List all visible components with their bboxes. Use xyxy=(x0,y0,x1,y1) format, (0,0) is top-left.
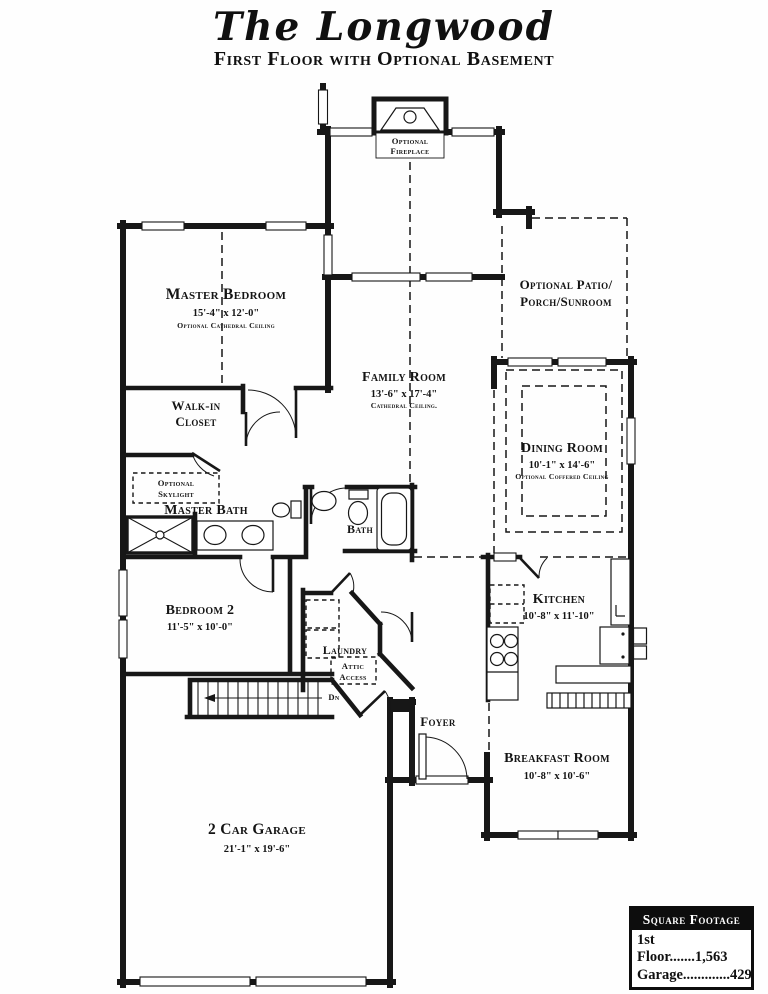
front-door-leaf xyxy=(419,734,426,779)
vanity-sink-right xyxy=(242,526,264,545)
kitchen-counter-right xyxy=(611,559,630,625)
patio-label-line2: Porch/Sunroom xyxy=(520,294,612,309)
dining-room-label: Dining Room xyxy=(521,441,603,456)
foyer-label: Foyer xyxy=(420,714,456,729)
sqft-row-garage: Garage.............429 xyxy=(632,966,751,984)
bath-label: Bath xyxy=(347,522,373,536)
vanity-sink-left xyxy=(204,526,226,545)
garage-door-right xyxy=(256,977,366,986)
sqft-row-first-floor: 1st Floor.......1,563 xyxy=(632,931,751,966)
optional-fireplace: Optional Fireplace xyxy=(374,99,446,158)
refrigerator xyxy=(600,627,629,664)
bath-toilet-tank xyxy=(349,490,368,499)
master-bedroom-dims: 15'-4" x 12'-0" xyxy=(193,308,260,319)
kitchen-dims: 10'-8" x 11'-10" xyxy=(523,611,594,622)
attic-access-label-line1: Attic xyxy=(342,661,364,671)
family-room-note: Cathedral Ceiling. xyxy=(371,401,438,410)
garage-dims: 21'-1" x 19'-6" xyxy=(224,844,291,855)
square-footage-header: Square Footage xyxy=(632,909,751,930)
master-bedroom-label: Master Bedroom xyxy=(166,286,287,303)
walk-in-closet-label-line2: Closet xyxy=(175,414,216,429)
walk-in-closet-label-line1: Walk-in xyxy=(172,398,221,413)
kitchen-label: Kitchen xyxy=(533,592,586,607)
square-footage-body: 1st Floor.......1,563 Garage............… xyxy=(632,930,751,987)
master-toilet-bowl xyxy=(273,503,290,517)
fireplace-label-line2: Fireplace xyxy=(391,146,430,156)
kitchen-counter-bottom xyxy=(556,666,631,683)
stair-direction-arrow xyxy=(204,694,215,702)
breakfast-room-dims: 10'-8" x 10'-6" xyxy=(524,771,591,782)
dining-room-dims: 10'-1" x 14'-6" xyxy=(529,460,596,471)
shower-drain xyxy=(156,531,164,539)
washer-outline xyxy=(306,600,339,628)
master-toilet-tank xyxy=(291,501,301,518)
square-footage-box: Square Footage 1st Floor.......1,563 Gar… xyxy=(629,906,754,990)
floor-plan-page: The Longwood First Floor with Optional B… xyxy=(0,0,768,994)
breakfast-room-label: Breakfast Room xyxy=(504,751,610,766)
exterior-utility-box-1 xyxy=(634,628,647,644)
stairs-dn-label: Dn xyxy=(328,692,340,702)
fireplace-label-line1: Optional xyxy=(392,136,428,146)
garage-door-left xyxy=(140,977,250,986)
skylight-label-line2: Skylight xyxy=(158,489,194,499)
family-room-label: Family Room xyxy=(362,370,446,385)
family-room-dims: 13'-6" x 17'-4" xyxy=(371,389,438,400)
attic-access-label-line2: Access xyxy=(339,672,367,682)
porch-pier xyxy=(390,701,410,712)
patio-label-line1: Optional Patio/ xyxy=(520,277,613,292)
dining-room-note: Optional Coffered Ceiling xyxy=(515,472,608,481)
master-bedroom-note: Optional Cathedral Ceiling xyxy=(177,321,275,330)
garage-label: 2 Car Garage xyxy=(208,821,306,838)
exterior-utility-box-2 xyxy=(634,646,647,659)
master-bath-label: Master Bath xyxy=(164,503,248,518)
bedroom-2-dims: 11'-5" x 10'-0" xyxy=(167,622,233,633)
floor-plan-drawing: Optional Fireplace xyxy=(0,0,768,994)
bedroom-2-label: Bedroom 2 xyxy=(166,603,235,618)
bath-sink xyxy=(312,492,336,511)
skylight-label-line1: Optional xyxy=(158,478,194,488)
laundry-label: Laundry xyxy=(323,643,368,657)
